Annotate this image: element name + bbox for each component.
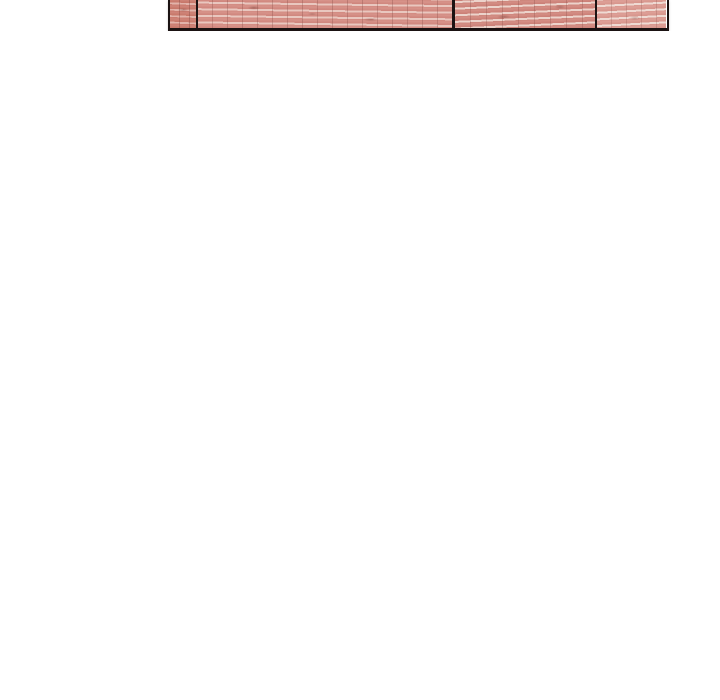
reader-page: [0, 0, 720, 700]
brick-wall-right: [597, 0, 666, 28]
page-blank-area: [0, 31, 720, 700]
brick-wall-mid-right: [455, 0, 595, 28]
brick-wall-main: [198, 0, 452, 28]
brick-pillar-left: [170, 0, 196, 28]
brick-wall-panel-image: [168, 0, 669, 31]
